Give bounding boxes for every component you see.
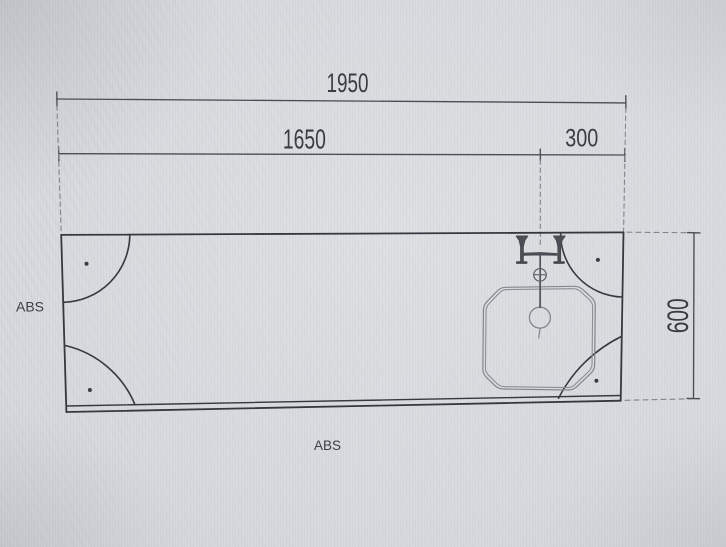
svg-text:1650: 1650 xyxy=(283,124,326,155)
svg-text:ABS: ABS xyxy=(16,299,44,315)
svg-text:600: 600 xyxy=(662,298,695,333)
svg-text:300: 300 xyxy=(565,125,598,153)
svg-text:ABS: ABS xyxy=(314,438,341,453)
svg-text:1950: 1950 xyxy=(327,68,369,98)
